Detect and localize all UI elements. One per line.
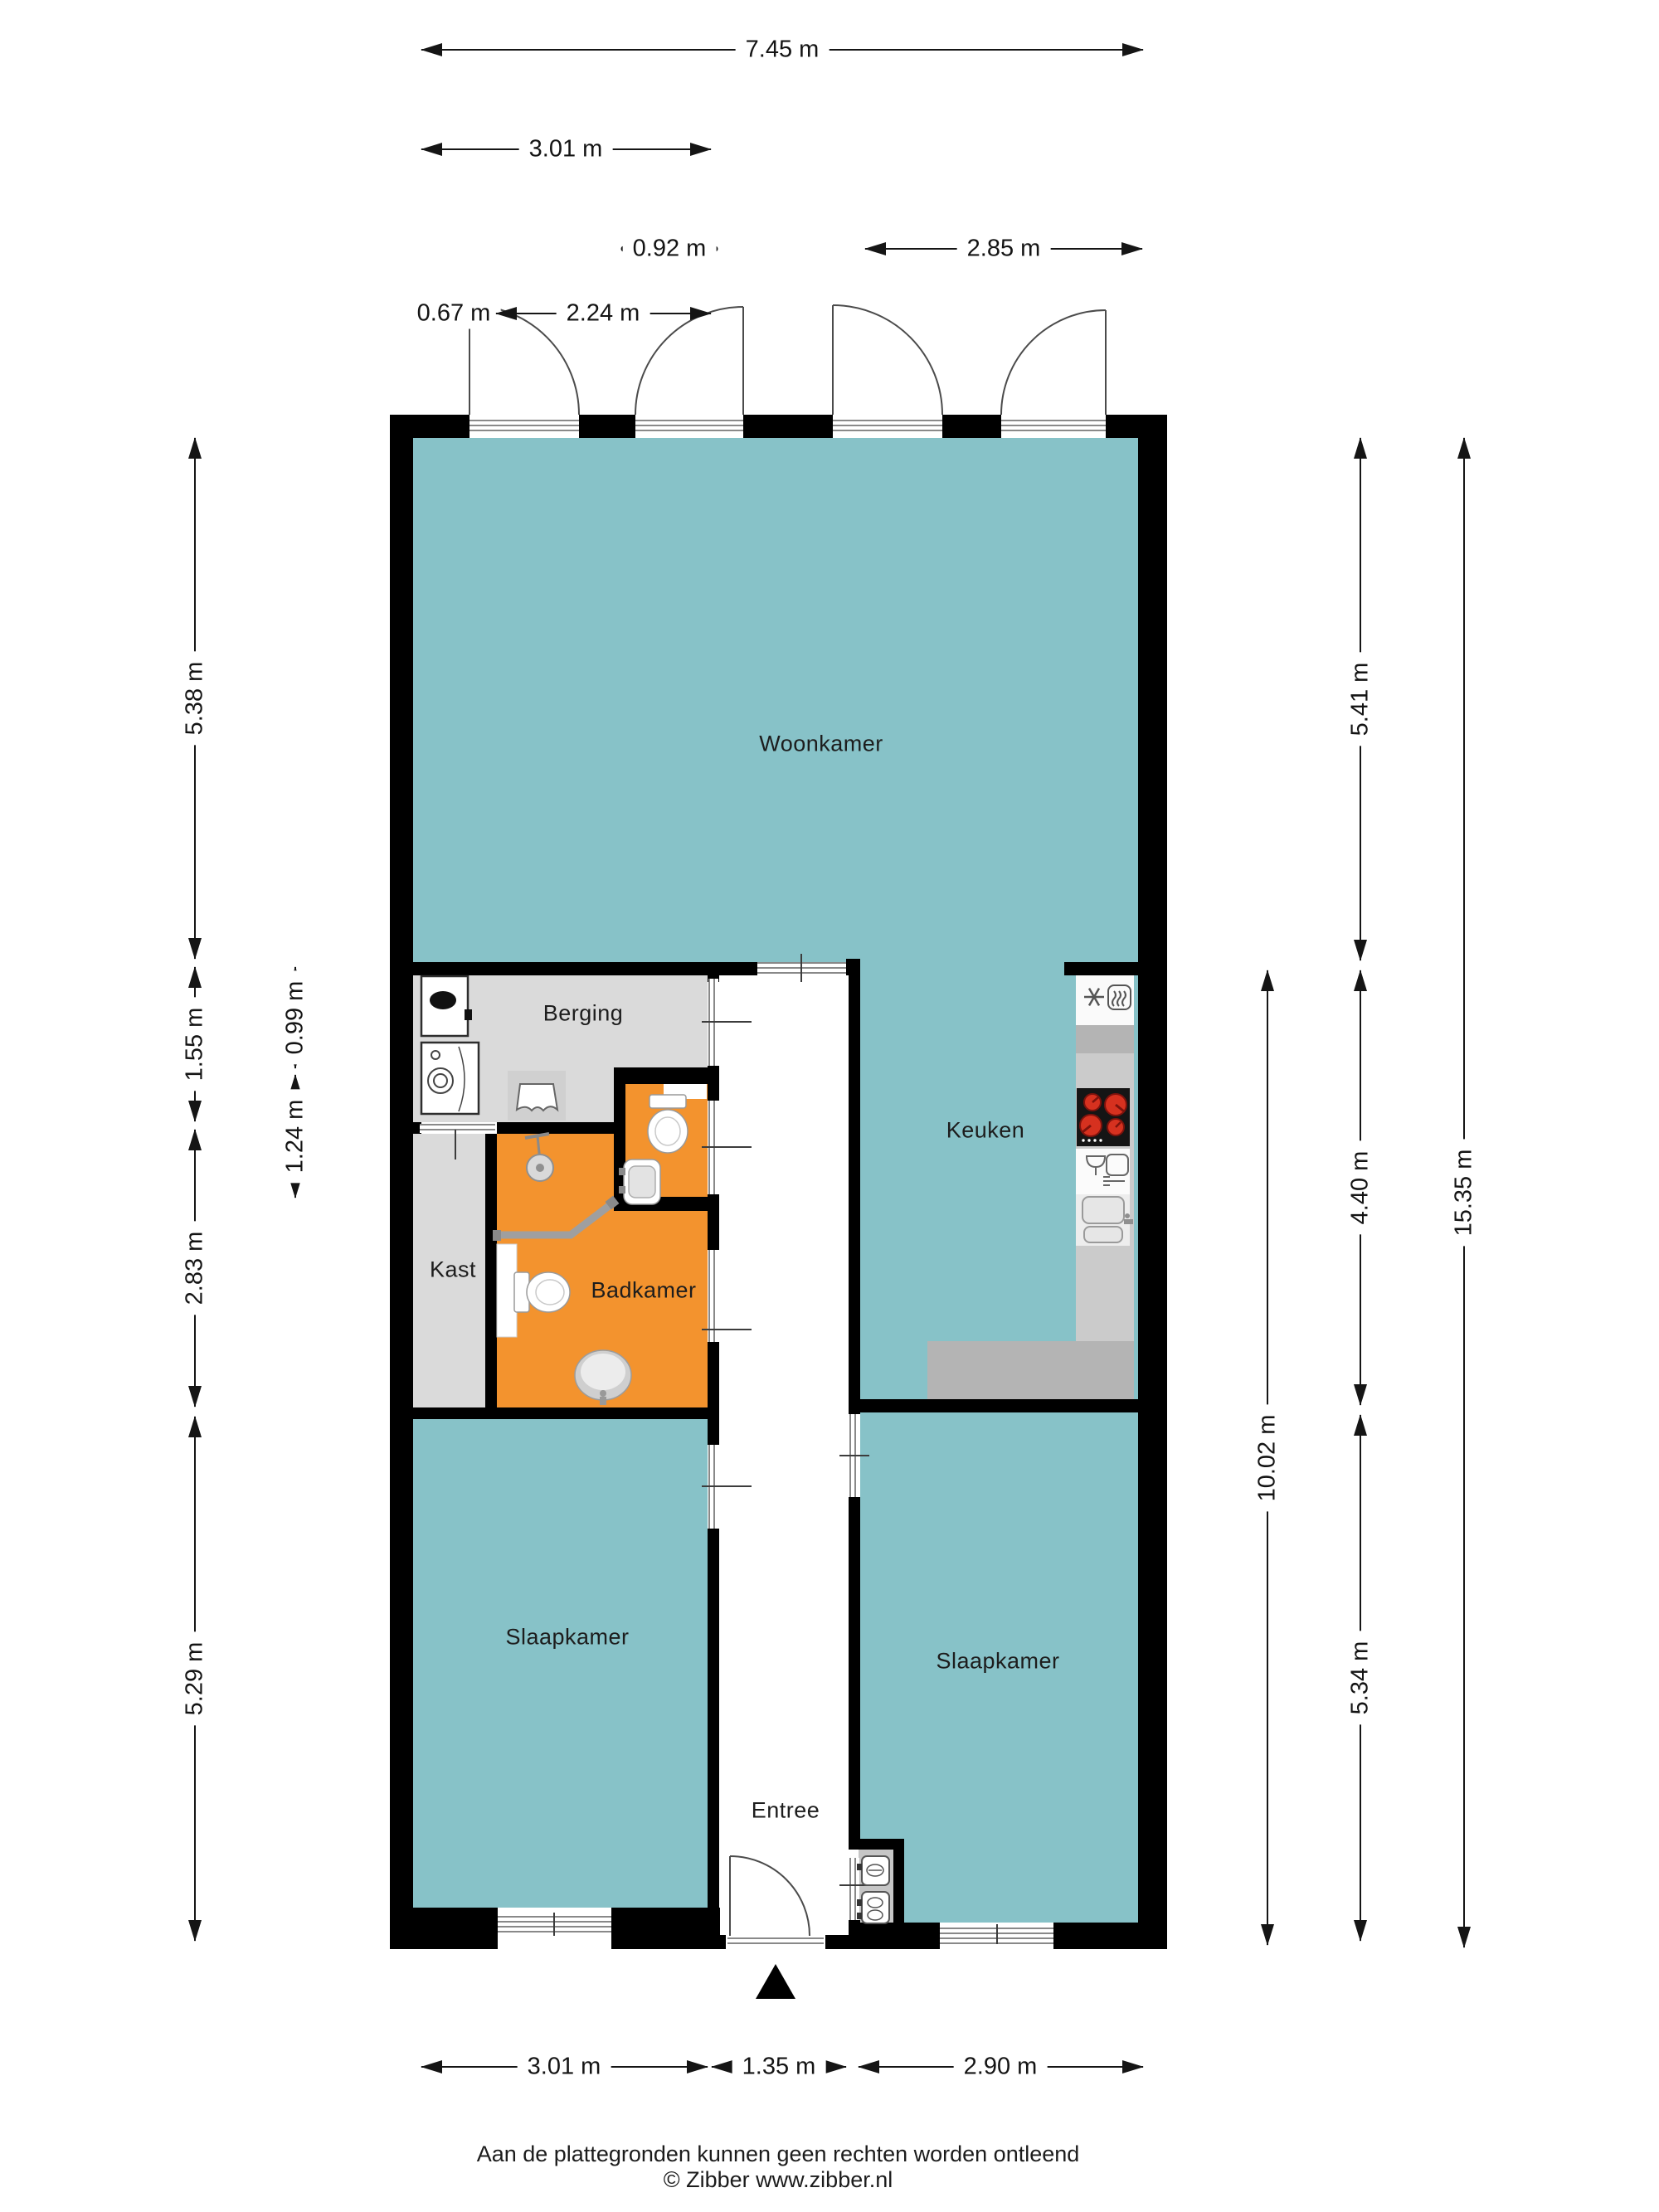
dim-right-total: 15.35 m bbox=[1449, 1140, 1480, 1247]
cooktop-icon bbox=[1080, 1094, 1126, 1142]
room-label-bathroom: Badkamer bbox=[591, 1278, 696, 1304]
toilet-icon bbox=[514, 1272, 570, 1312]
dim-toilet-depth: 1.24 m bbox=[280, 1090, 311, 1184]
dishwasher-icon bbox=[1087, 1155, 1128, 1185]
dim-width-hall: 0.92 m bbox=[623, 234, 717, 265]
footer-copyright: © Zibber www.zibber.nl bbox=[0, 2167, 1556, 2193]
room-label-kitchen: Keuken bbox=[946, 1118, 1025, 1144]
north-arrow-icon bbox=[756, 1964, 795, 1999]
dim-storage-depth: 0.99 m bbox=[280, 971, 311, 1065]
washbasin-icon bbox=[575, 1350, 631, 1405]
fridge-icon bbox=[1084, 989, 1104, 1006]
room-label-living: Woonkamer bbox=[759, 732, 883, 757]
dim-left-bedroom: 5.29 m bbox=[180, 1632, 211, 1726]
dim-right-kitchen: 4.40 m bbox=[1345, 1141, 1376, 1235]
room-label-closet: Kast bbox=[430, 1257, 476, 1283]
room-label-bedroom-right: Slaapkamer bbox=[936, 1649, 1059, 1675]
floorplan-page: Woonkamer Berging Kast Badkamer Keuken S… bbox=[0, 0, 1659, 2212]
boiler-icon bbox=[421, 976, 472, 1036]
room-label-storage: Berging bbox=[543, 1001, 624, 1027]
entrance-door-swing-icon bbox=[730, 1856, 810, 1936]
dim-width-total: 7.45 m bbox=[736, 35, 829, 66]
dim-right-bedroom: 5.34 m bbox=[1345, 1631, 1376, 1725]
clothes-icon bbox=[508, 1071, 566, 1121]
dim-left-storage: 1.55 m bbox=[180, 998, 211, 1091]
dim-bottom-left: 3.01 m bbox=[518, 2052, 611, 2083]
dim-left-bath: 2.83 m bbox=[180, 1222, 211, 1315]
washing-machine-icon bbox=[421, 1043, 479, 1114]
dim-bottom-right: 2.90 m bbox=[954, 2052, 1048, 2083]
shower-rail-icon bbox=[493, 1196, 619, 1241]
dim-left-living: 5.38 m bbox=[180, 652, 211, 746]
oven-icon bbox=[1108, 985, 1131, 1009]
room-label-entrance: Entree bbox=[752, 1798, 820, 1824]
dim-width-left: 3.01 m bbox=[519, 134, 613, 165]
dim-right-back: 10.02 m bbox=[1253, 1405, 1283, 1512]
dim-door-offset: 0.67 m bbox=[407, 299, 501, 329]
dim-width-right: 2.85 m bbox=[957, 234, 1051, 265]
room-label-bedroom-left: Slaapkamer bbox=[505, 1625, 629, 1650]
hand-basin-icon bbox=[619, 1159, 660, 1204]
dim-door-span: 2.24 m bbox=[557, 299, 650, 329]
electric-meter-icon bbox=[857, 1856, 889, 1923]
footer-disclaimer: Aan de plattegronden kunnen geen rechten… bbox=[0, 2142, 1556, 2167]
dim-right-living: 5.41 m bbox=[1345, 653, 1376, 746]
dim-bottom-hall: 1.35 m bbox=[732, 2052, 826, 2083]
shower-icon bbox=[525, 1134, 553, 1181]
toilet-icon bbox=[648, 1095, 688, 1153]
kitchen-sink-icon bbox=[1082, 1197, 1133, 1242]
fixtures-overlay bbox=[0, 0, 1659, 2212]
